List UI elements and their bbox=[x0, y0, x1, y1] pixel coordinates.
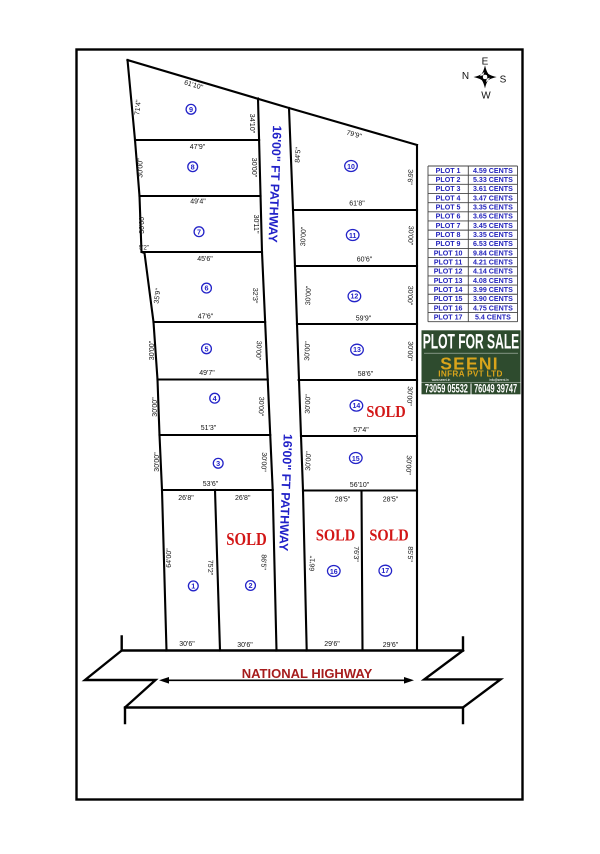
svg-text:PLOT 2: PLOT 2 bbox=[436, 176, 461, 184]
svg-text:6.53 CENTS: 6.53 CENTS bbox=[473, 240, 513, 248]
svg-text:47'6": 47'6" bbox=[198, 314, 214, 321]
svg-text:PLOT 8: PLOT 8 bbox=[436, 231, 461, 239]
svg-text:30'00": 30'00" bbox=[404, 455, 412, 475]
svg-text:5.33 CENTS: 5.33 CENTS bbox=[473, 176, 513, 184]
svg-text:30'00": 30'00" bbox=[305, 451, 313, 471]
svg-text:4.21 CENTS: 4.21 CENTS bbox=[473, 258, 513, 266]
svg-text:SOLD: SOLD bbox=[226, 530, 267, 549]
svg-text:28'5": 28'5" bbox=[383, 497, 399, 504]
svg-text:PLOT 14: PLOT 14 bbox=[434, 286, 463, 294]
svg-text:3.47 CENTS: 3.47 CENTS bbox=[473, 194, 513, 202]
svg-text:17: 17 bbox=[381, 568, 389, 575]
svg-text:4.59 CENTS: 4.59 CENTS bbox=[473, 167, 513, 175]
svg-text:1: 1 bbox=[191, 582, 195, 591]
svg-text:30'11": 30'11" bbox=[252, 215, 259, 234]
svg-text:30'6": 30'6" bbox=[179, 641, 195, 648]
svg-text:30'00": 30'00" bbox=[154, 452, 161, 472]
svg-text:56'10": 56'10" bbox=[350, 482, 370, 489]
svg-text:73059 05532 | 76049 39747: 73059 05532 | 76049 39747 bbox=[425, 383, 518, 396]
svg-text:45'6": 45'6" bbox=[197, 256, 213, 263]
svg-text:3: 3 bbox=[216, 459, 220, 468]
svg-text:13: 13 bbox=[353, 347, 361, 354]
svg-text:2: 2 bbox=[248, 581, 252, 590]
svg-text:85'5": 85'5" bbox=[406, 546, 414, 562]
svg-text:4.75 CENTS: 4.75 CENTS bbox=[473, 304, 513, 312]
svg-text:30'6": 30'6" bbox=[237, 642, 253, 649]
svg-text:26'8": 26'8" bbox=[235, 495, 251, 502]
svg-text:30'00": 30'00" bbox=[406, 286, 414, 306]
svg-text:PLOT 5: PLOT 5 bbox=[436, 204, 461, 212]
svg-text:28'5": 28'5" bbox=[335, 497, 351, 504]
svg-text:PLOT 17: PLOT 17 bbox=[434, 313, 463, 321]
svg-text:60'6": 60'6" bbox=[357, 257, 373, 264]
svg-text:NATIONAL HIGHWAY: NATIONAL HIGHWAY bbox=[242, 666, 373, 681]
svg-text:58'6": 58'6" bbox=[358, 371, 374, 378]
svg-text:30'00": 30'00" bbox=[259, 452, 267, 472]
svg-text:PLOT 1: PLOT 1 bbox=[436, 167, 461, 175]
svg-text:5.4 CENTS: 5.4 CENTS bbox=[475, 313, 511, 321]
svg-text:30'00": 30'00" bbox=[305, 394, 313, 414]
svg-text:30'00": 30'00" bbox=[304, 341, 312, 361]
svg-text:3.35 CENTS: 3.35 CENTS bbox=[473, 204, 513, 212]
svg-text:12: 12 bbox=[351, 294, 359, 301]
svg-text:PLOT 16: PLOT 16 bbox=[434, 304, 463, 312]
svg-text:PLOT 10: PLOT 10 bbox=[434, 249, 463, 257]
svg-text:PLOT 3: PLOT 3 bbox=[436, 185, 461, 193]
svg-text:7: 7 bbox=[197, 227, 201, 236]
svg-text:3.61 CENTS: 3.61 CENTS bbox=[473, 185, 513, 193]
svg-text:61'8": 61'8" bbox=[349, 201, 365, 208]
svg-text:9: 9 bbox=[189, 105, 193, 114]
svg-text:64'00": 64'00" bbox=[166, 548, 173, 568]
svg-text:PLOT 6: PLOT 6 bbox=[436, 213, 461, 221]
svg-text:16: 16 bbox=[330, 569, 338, 576]
svg-text:15: 15 bbox=[352, 456, 360, 463]
svg-text:26'8": 26'8" bbox=[178, 495, 194, 502]
svg-text:3.90 CENTS: 3.90 CENTS bbox=[473, 295, 513, 303]
svg-text:66'1": 66'1" bbox=[309, 555, 317, 571]
svg-text:30'00": 30'00" bbox=[305, 285, 313, 305]
svg-text:S: S bbox=[500, 74, 507, 85]
svg-text:30'00": 30'00" bbox=[257, 397, 265, 417]
svg-text:57'4": 57'4" bbox=[353, 427, 369, 434]
svg-text:86'5": 86'5" bbox=[259, 554, 267, 570]
svg-text:3.65 CENTS: 3.65 CENTS bbox=[473, 213, 513, 221]
svg-text:5'2": 5'2" bbox=[139, 246, 149, 252]
svg-text:SOLD: SOLD bbox=[369, 527, 408, 545]
svg-text:84'5": 84'5" bbox=[294, 147, 302, 163]
svg-text:30'00": 30'00" bbox=[138, 158, 145, 178]
svg-text:30'00": 30'00" bbox=[139, 214, 146, 234]
svg-text:34'10": 34'10" bbox=[248, 114, 255, 134]
svg-text:E: E bbox=[482, 57, 489, 68]
svg-text:59'9": 59'9" bbox=[356, 316, 372, 323]
svg-text:3.99 CENTS: 3.99 CENTS bbox=[473, 286, 513, 294]
svg-text:PLOT 9: PLOT 9 bbox=[436, 240, 461, 248]
svg-text:PLOT 11: PLOT 11 bbox=[434, 258, 462, 266]
svg-text:W: W bbox=[481, 90, 491, 101]
svg-text:75'2": 75'2" bbox=[206, 560, 213, 576]
svg-text:29'6": 29'6" bbox=[324, 641, 340, 648]
svg-text:3.35 CENTS: 3.35 CENTS bbox=[473, 231, 513, 239]
svg-text:30'00": 30'00" bbox=[149, 340, 156, 360]
svg-text:51'3": 51'3" bbox=[201, 425, 217, 432]
svg-text:36'6": 36'6" bbox=[406, 169, 414, 185]
svg-text:SOLD: SOLD bbox=[366, 403, 405, 421]
svg-text:49'4": 49'4" bbox=[190, 199, 206, 206]
svg-text:PLOT FOR SALE: PLOT FOR SALE bbox=[423, 330, 520, 353]
svg-text:32'3": 32'3" bbox=[251, 288, 259, 304]
svg-text:5: 5 bbox=[204, 344, 208, 353]
svg-text:PLOT 4: PLOT 4 bbox=[436, 194, 461, 202]
svg-text:29'6": 29'6" bbox=[383, 642, 399, 649]
svg-text:14: 14 bbox=[353, 403, 361, 410]
svg-text:30'00": 30'00" bbox=[152, 397, 159, 417]
svg-text:N: N bbox=[462, 71, 469, 82]
svg-text:30'00": 30'00" bbox=[250, 158, 257, 178]
svg-text:53'6": 53'6" bbox=[203, 481, 219, 488]
svg-text:30'00": 30'00" bbox=[406, 226, 414, 246]
svg-text:SOLD: SOLD bbox=[316, 527, 355, 545]
svg-text:30'00": 30'00" bbox=[406, 341, 414, 361]
svg-text:PLOT 13: PLOT 13 bbox=[434, 277, 463, 285]
svg-text:4.08 CENTS: 4.08 CENTS bbox=[473, 277, 513, 285]
svg-text:49'7": 49'7" bbox=[199, 370, 215, 377]
svg-text:47'9": 47'9" bbox=[190, 144, 206, 151]
svg-text:PLOT 15: PLOT 15 bbox=[434, 295, 463, 303]
svg-text:9.84 CENTS: 9.84 CENTS bbox=[473, 249, 513, 257]
svg-text:PLOT 12: PLOT 12 bbox=[434, 268, 463, 276]
svg-text:www.seeni.in: www.seeni.in bbox=[432, 378, 451, 382]
svg-text:3.45 CENTS: 3.45 CENTS bbox=[473, 222, 513, 230]
svg-text:11: 11 bbox=[349, 233, 357, 240]
svg-text:30'00": 30'00" bbox=[254, 341, 262, 361]
svg-text:30'00": 30'00" bbox=[405, 386, 413, 406]
svg-text:8: 8 bbox=[191, 162, 195, 171]
svg-text:76'3": 76'3" bbox=[352, 546, 359, 562]
svg-text:30'00": 30'00" bbox=[300, 226, 308, 246]
svg-text:6: 6 bbox=[204, 284, 208, 293]
svg-text:4.14 CENTS: 4.14 CENTS bbox=[473, 268, 513, 276]
svg-text:info@seeni.in: info@seeni.in bbox=[489, 378, 509, 382]
svg-text:PLOT 7: PLOT 7 bbox=[436, 222, 461, 230]
svg-text:10: 10 bbox=[347, 164, 355, 171]
